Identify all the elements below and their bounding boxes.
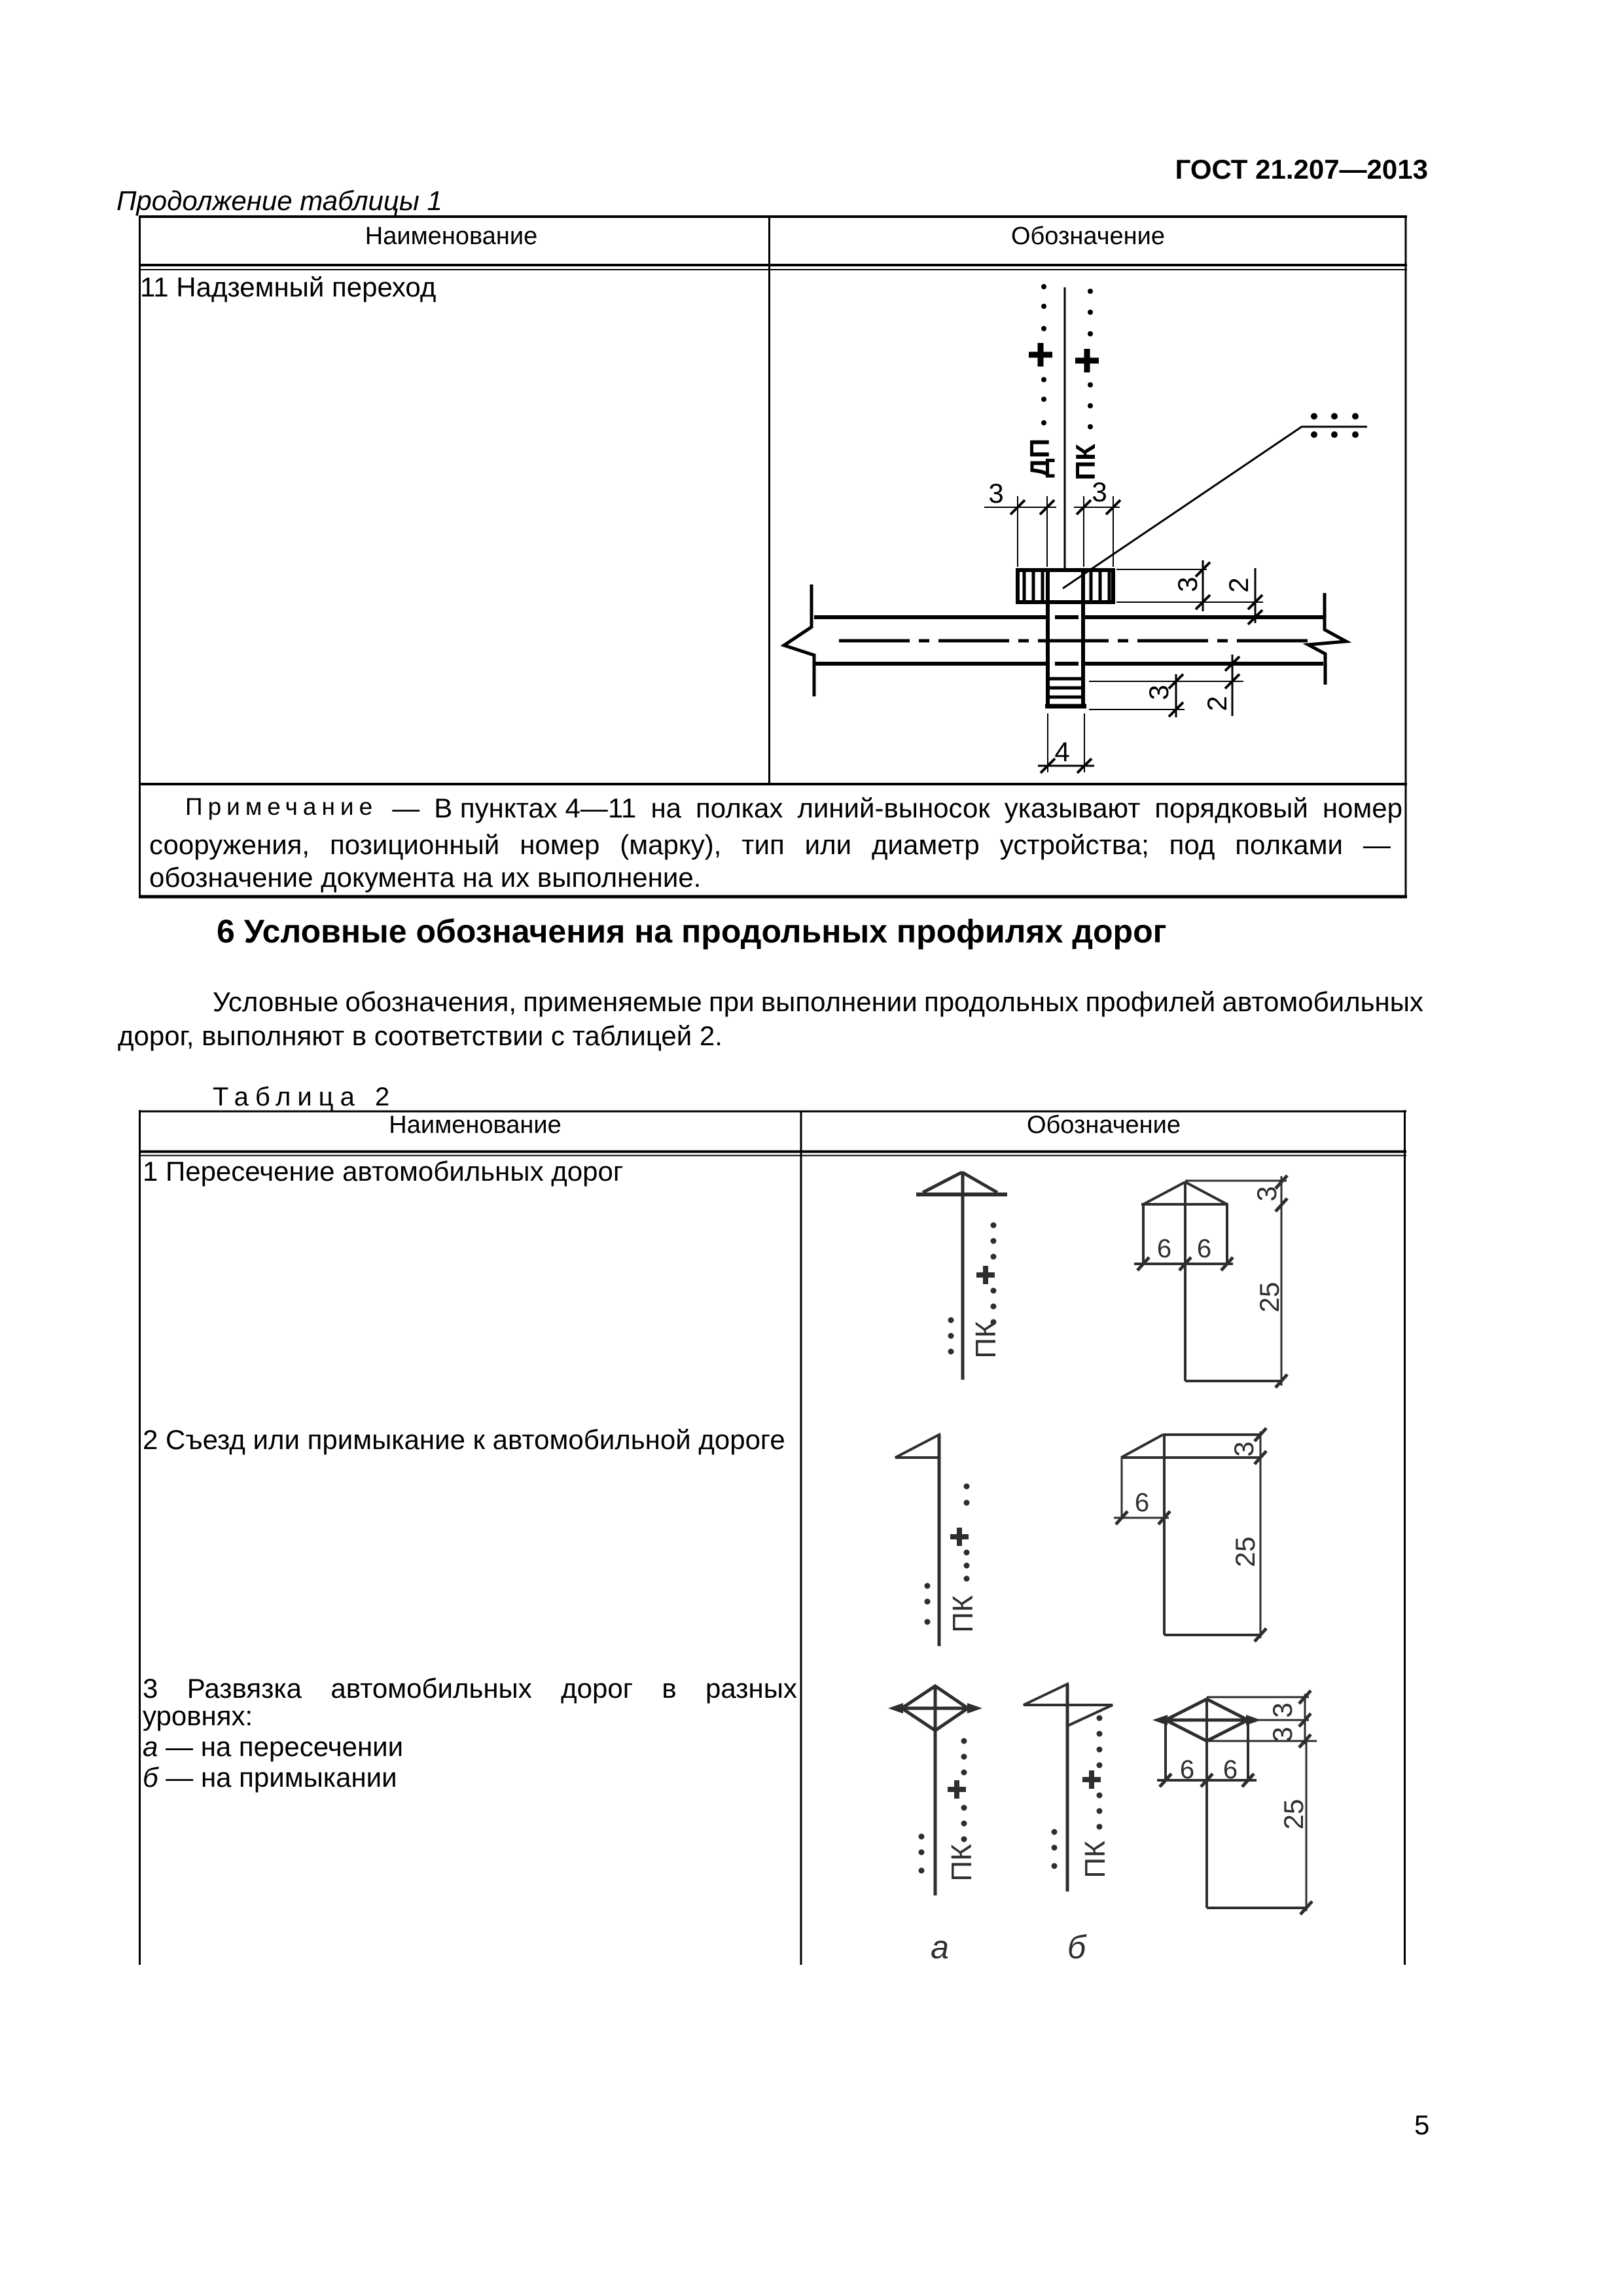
svg-text:ПК: ПК — [946, 1844, 978, 1882]
svg-text:25: 25 — [1230, 1537, 1260, 1568]
svg-text:ПК: ПК — [1079, 1840, 1111, 1878]
svg-text:3: 3 — [1228, 1441, 1259, 1456]
svg-text:6: 6 — [1157, 1234, 1171, 1263]
svg-text:25: 25 — [1278, 1799, 1309, 1830]
svg-text:3: 3 — [1172, 577, 1203, 592]
svg-text:3: 3 — [1267, 1702, 1298, 1717]
svg-text:25: 25 — [1254, 1282, 1285, 1313]
svg-text:6: 6 — [1197, 1234, 1211, 1263]
svg-text:3: 3 — [988, 478, 1003, 509]
svg-text:ПК: ПК — [970, 1321, 1002, 1359]
svg-text:3: 3 — [1251, 1186, 1282, 1201]
svg-text:ДП: ДП — [1024, 439, 1055, 478]
svg-text:2: 2 — [1202, 696, 1232, 711]
svg-text:3: 3 — [1143, 685, 1174, 700]
svg-text:2: 2 — [1223, 577, 1254, 592]
svg-text:б: б — [1067, 1929, 1087, 1965]
svg-text:а: а — [931, 1929, 949, 1965]
svg-text:3: 3 — [1092, 476, 1107, 507]
svg-text:4: 4 — [1054, 736, 1069, 767]
svg-text:6: 6 — [1180, 1755, 1194, 1784]
svg-text:ПК: ПК — [1070, 444, 1101, 480]
svg-text:6: 6 — [1223, 1755, 1238, 1784]
svg-text:3: 3 — [1267, 1727, 1298, 1742]
svg-text:6: 6 — [1135, 1488, 1149, 1517]
svg-text:ПК: ПК — [947, 1595, 979, 1633]
